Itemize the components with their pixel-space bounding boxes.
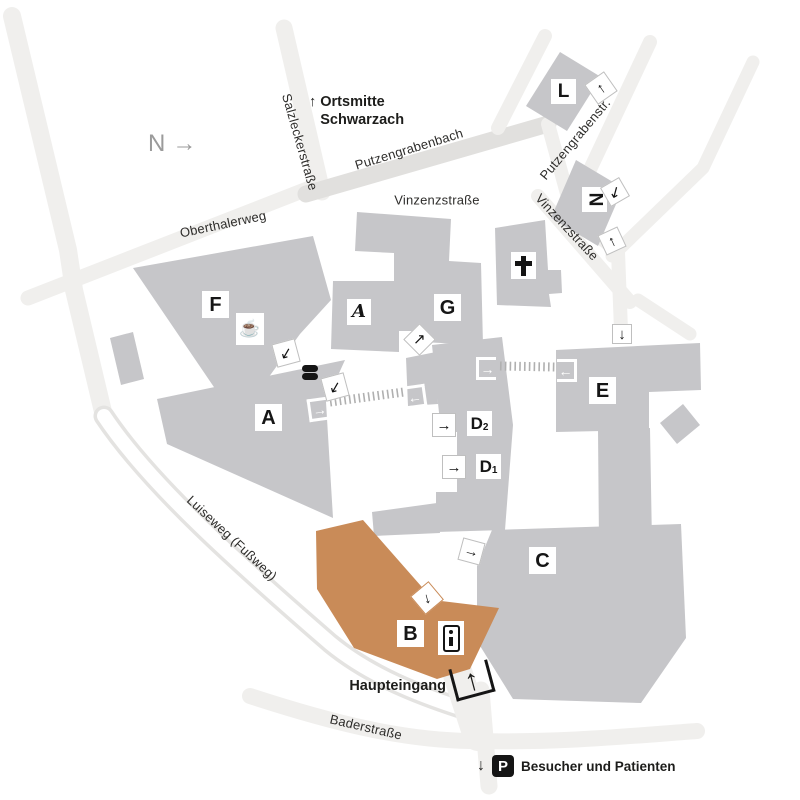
building-label-g: G <box>434 294 461 321</box>
building-d-south-wing <box>372 503 440 536</box>
entrance-arrow-icon: ↓ <box>618 327 626 342</box>
hospital-site-map: N → ↑ Ortsmitte Schwarzach Salzleckerstr… <box>0 0 800 800</box>
compass-north: N → <box>148 130 196 158</box>
info-icon-bar <box>449 637 453 646</box>
cross-horizontal <box>515 261 532 266</box>
building-small-west <box>110 332 144 385</box>
parking-note: ↓ P Besucher und Patienten <box>477 755 676 777</box>
bus-stop-icon-bar <box>302 373 318 380</box>
direction-sign-text: Ortsmitte Schwarzach <box>320 93 404 129</box>
bus-stop-icon <box>302 363 318 382</box>
direction-line-1: Ortsmitte <box>320 93 404 111</box>
bus-stop-icon-bar <box>302 365 318 372</box>
entrance-marker-e-west: ← <box>557 359 577 382</box>
entrance-arrow-icon: ↗ <box>413 332 426 347</box>
building-label-e: E <box>589 377 616 404</box>
building-label-a: A <box>255 404 282 431</box>
entrance-marker-d-top: → <box>476 357 496 380</box>
direction-sign-ortsmitte: ↑ Ortsmitte Schwarzach <box>309 93 404 129</box>
entrance-arrow-icon: → <box>447 460 462 475</box>
compass-letter: N <box>148 130 165 158</box>
entrance-arrow-icon: ↓ <box>421 590 432 606</box>
entrance-arrow-icon: ↙ <box>278 344 294 362</box>
parking-label: Besucher und Patienten <box>521 759 676 774</box>
building-a <box>157 360 345 518</box>
info-icon-box <box>438 621 464 655</box>
building-label-f: F <box>202 291 229 318</box>
info-icon <box>443 625 460 652</box>
building-label-b: B <box>397 620 424 647</box>
coffee-cup-icon: ☕ <box>239 319 260 339</box>
entrance-arrow-icon: → <box>462 542 480 560</box>
building-label-d1-sub: 1 <box>492 466 498 476</box>
cross-vertical <box>521 256 526 276</box>
building-c <box>477 524 686 703</box>
building-label-d1-base: D <box>480 458 492 475</box>
building-label-d2: D2 <box>467 411 492 436</box>
building-g-complex <box>331 212 483 352</box>
building-label-d2-base: D <box>471 415 483 432</box>
entrance-arrow-icon: ↙ <box>327 378 343 396</box>
compass-arrow-icon: → <box>172 130 196 158</box>
entrance-arrow-icon: ← <box>559 364 573 378</box>
main-entrance-label: Haupteingang <box>330 678 446 694</box>
building-label-l: L <box>551 79 576 104</box>
entrance-arrow-icon: ↑ <box>605 233 618 250</box>
down-arrow-icon: ↓ <box>477 757 485 775</box>
entrance-marker-d-west: ← <box>404 384 427 410</box>
entrance-arrow-icon: → <box>312 401 328 417</box>
entrance-arrow-icon: → <box>437 418 452 433</box>
chapel-cross-icon <box>515 256 532 276</box>
road-east-stub <box>638 300 690 334</box>
entrance-arrow-icon: ← <box>407 389 423 405</box>
parking-icon: P <box>492 755 514 777</box>
building-label-n-letter: N <box>585 193 604 207</box>
entrance-arrow-icon: → <box>481 362 495 376</box>
building-label-d1: D1 <box>476 454 501 479</box>
building-label-a-annex: A <box>347 299 371 325</box>
chapel-icon-box <box>511 252 536 279</box>
building-label-d2-sub: 2 <box>483 423 489 433</box>
road-north <box>498 36 545 128</box>
entrance-marker-d1: → <box>442 455 466 479</box>
walkway-d-e <box>500 366 555 367</box>
road-west-perimeter <box>12 16 104 416</box>
building-small-east <box>660 404 700 444</box>
main-entrance-arrow-icon: ↑ <box>461 665 483 698</box>
cafeteria-icon-box: ☕ <box>236 313 264 345</box>
info-icon-dot <box>449 630 453 634</box>
entrance-arrow-icon: ↙ <box>606 182 624 201</box>
street-label-vinzenzstrasse-north: Vinzenzstraße <box>394 193 479 208</box>
direction-line-2: Schwarzach <box>320 111 404 129</box>
up-arrow-icon: ↑ <box>309 93 316 129</box>
building-label-c: C <box>529 547 556 574</box>
entrance-marker-d2: → <box>432 413 456 437</box>
entrance-arrow-icon: ↑ <box>594 80 609 97</box>
entrance-marker-e-street: ↓ <box>612 324 632 344</box>
